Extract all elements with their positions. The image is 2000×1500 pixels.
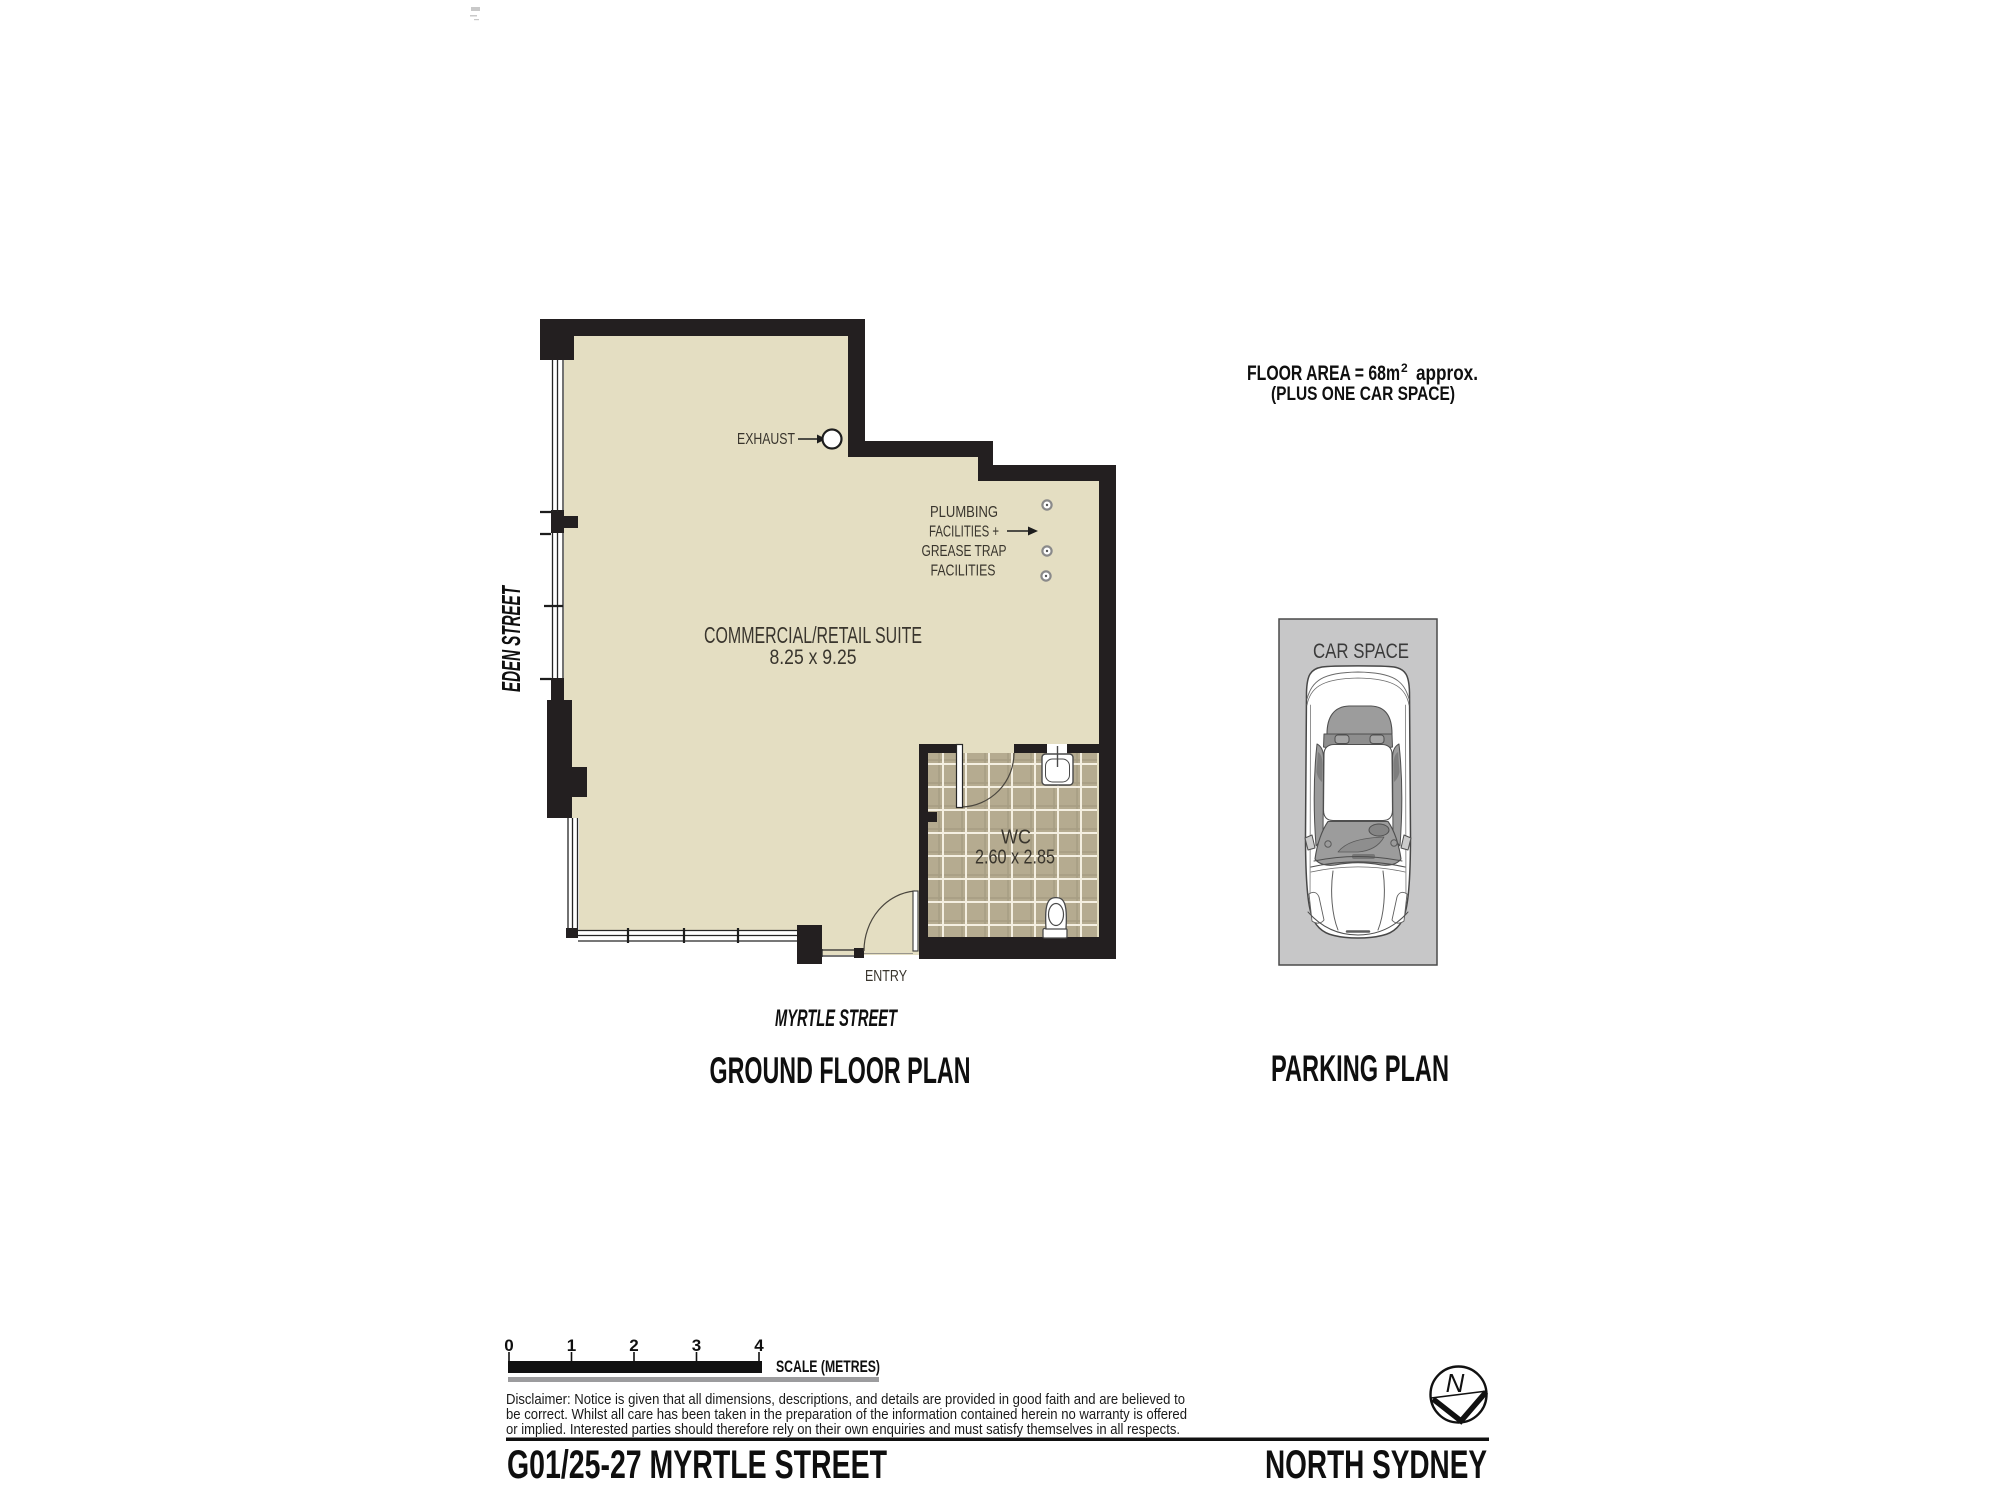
svg-text:approx.: approx. [1416, 362, 1478, 385]
svg-text:2.60 x 2.85: 2.60 x 2.85 [975, 847, 1055, 869]
svg-text:NORTH SYDNEY: NORTH SYDNEY [1265, 1443, 1487, 1487]
svg-text:COMMERCIAL/RETAIL SUITE: COMMERCIAL/RETAIL SUITE [704, 622, 922, 648]
svg-text:CAR SPACE: CAR SPACE [1313, 640, 1409, 663]
svg-text:FACILITIES +: FACILITIES + [929, 524, 999, 541]
svg-text:GREASE TRAP: GREASE TRAP [922, 543, 1007, 560]
svg-text:GROUND FLOOR PLAN: GROUND FLOOR PLAN [710, 1050, 971, 1091]
svg-text:SCALE (METRES): SCALE (METRES) [776, 1358, 880, 1376]
svg-text:MYRTLE STREET: MYRTLE STREET [775, 1005, 898, 1032]
svg-text:PARKING PLAN: PARKING PLAN [1271, 1048, 1449, 1089]
svg-text:WC: WC [1001, 827, 1031, 849]
svg-text:8.25 x 9.25: 8.25 x 9.25 [770, 646, 857, 669]
svg-text:(PLUS ONE CAR SPACE): (PLUS ONE CAR SPACE) [1271, 383, 1455, 405]
svg-text:or implied. Interested parties: or implied. Interested parties should th… [506, 1421, 1180, 1438]
svg-text:EXHAUST: EXHAUST [737, 431, 795, 448]
svg-text:FLOOR AREA = 68m: FLOOR AREA = 68m [1247, 362, 1400, 385]
svg-text:EDEN STREET: EDEN STREET [496, 585, 526, 692]
svg-text:ENTRY: ENTRY [865, 968, 907, 985]
svg-text:PLUMBING: PLUMBING [930, 504, 998, 521]
svg-text:G01/25-27 MYRTLE STREET: G01/25-27 MYRTLE STREET [507, 1443, 887, 1487]
svg-text:FACILITIES: FACILITIES [931, 563, 996, 580]
svg-text:2: 2 [1401, 361, 1408, 375]
